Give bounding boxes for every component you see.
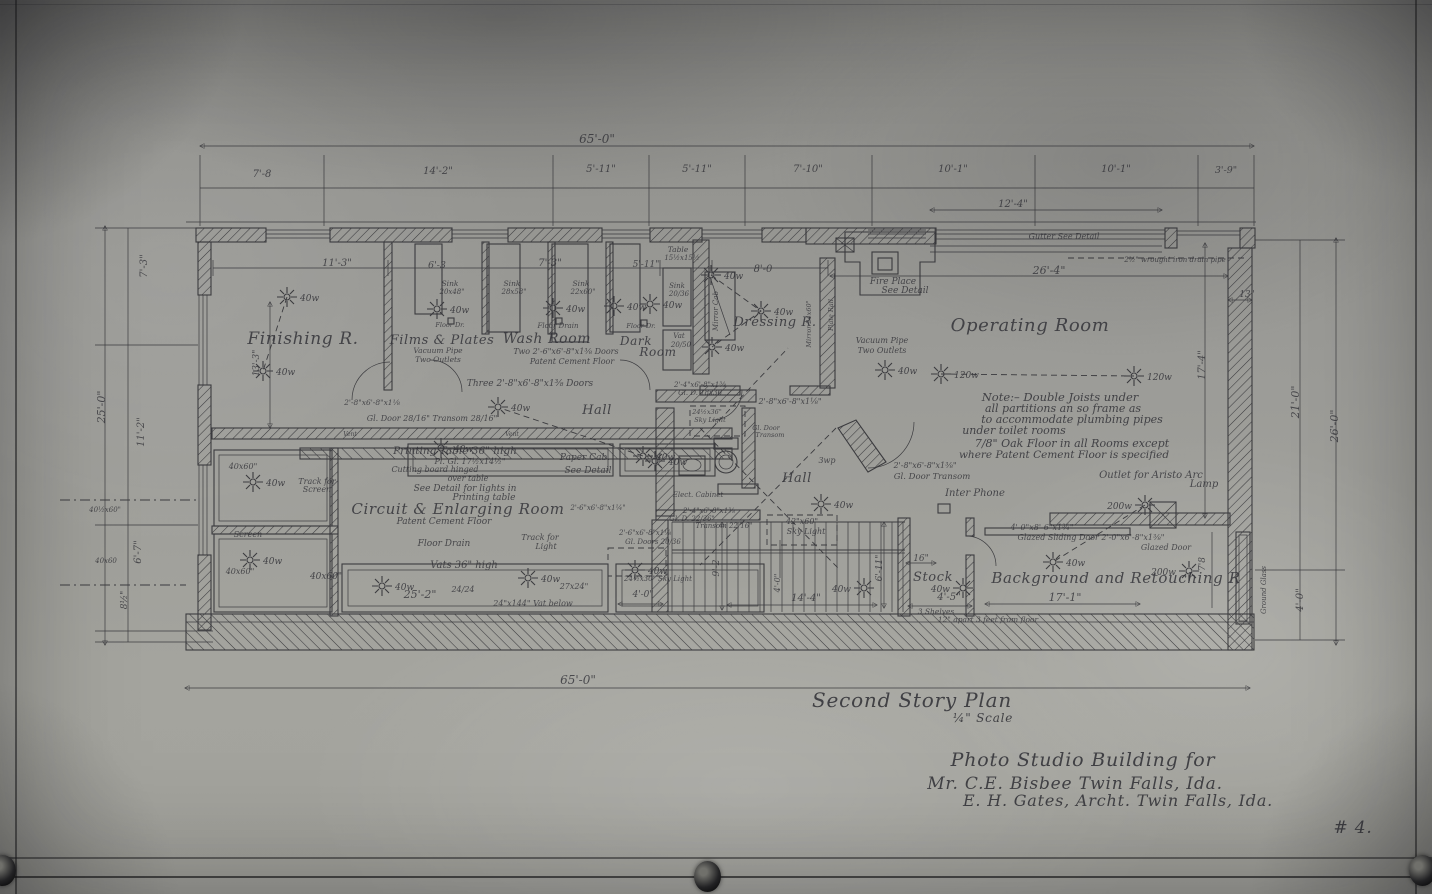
- annotation-label: Vats 36" high: [430, 560, 498, 571]
- light-wattage-label: 40w: [831, 585, 851, 595]
- annotation-label: over table: [448, 474, 489, 483]
- dimension-label: 10'-1": [938, 164, 968, 175]
- annotation-label: Vat: [673, 332, 685, 340]
- light-fixture: 40w: [243, 472, 285, 492]
- dimension-label: 5'-11": [682, 164, 712, 175]
- dimension-label: 11'-3": [322, 258, 352, 269]
- plan-scale: ¼" Scale: [953, 711, 1013, 725]
- annotation-label: 28x58": [501, 288, 527, 296]
- light-wattage-label: 120w: [1147, 373, 1172, 383]
- light-wattage-label: 40w: [299, 294, 319, 304]
- annotation-label: Sky Light: [694, 416, 726, 424]
- dimension-label: 7'-8: [253, 169, 272, 180]
- dimension-label: 26'-4": [1032, 264, 1066, 277]
- light-burst-icon: [518, 568, 538, 588]
- annotation-label: Gl. D. 18x36: [678, 389, 722, 397]
- annotation-label: Vacuum Pipe: [413, 346, 463, 355]
- annotation-label: Patent Cement Floor: [529, 357, 615, 366]
- photo-frame-line-top: [0, 4, 1432, 5]
- interphone-box: [938, 504, 950, 513]
- dimension-label: 6'-3: [428, 260, 446, 271]
- annotation-label: 40½x60": [88, 506, 121, 514]
- annotation-label: Gl. Door Transom: [894, 472, 971, 482]
- annotation-label: 2'-8"x6'-8"x1⅛": [757, 397, 821, 406]
- light-burst-icon: [811, 494, 831, 514]
- annotation-label: 40x60": [228, 462, 258, 471]
- light-wattage-label: 40w: [262, 557, 282, 567]
- annotation-label: 2'-8"x6'-8"x1⅛: [343, 398, 400, 407]
- annotation-label: 2'-4"x6'-8"x1⅜: [682, 507, 735, 515]
- annotation-label: 40x60": [225, 567, 255, 576]
- annotation-label: Glazed Door: [1141, 543, 1192, 552]
- dimension-label: 8'-0: [754, 264, 773, 275]
- note-line: under toilet rooms: [962, 424, 1066, 437]
- annotation-label: Two Outlets: [858, 346, 907, 355]
- annotation-label: 24/24: [450, 585, 474, 594]
- annotation-label: Patent Cement Floor: [396, 517, 493, 527]
- sheet-number: # 4.: [1333, 818, 1372, 838]
- dimension-label: 17'-4": [1197, 350, 1208, 380]
- note-line: where Patent Cement Floor is specified: [959, 449, 1169, 461]
- annotation-label: 2½" wrought iron drain pipe: [1123, 256, 1226, 264]
- light-fixture: 40w: [518, 568, 560, 588]
- annotation-label: Plate Rail: [827, 299, 835, 332]
- dimension-label: 10'-1": [1101, 164, 1131, 175]
- annotation-label: 27x24": [559, 582, 589, 591]
- annotation-label: 2'-6"x6'-8"x1¼": [569, 504, 625, 512]
- dimension-label: 8½": [119, 591, 130, 610]
- dimension-label: 6'-11": [875, 555, 885, 582]
- fastener-grommet-right: [1409, 855, 1432, 886]
- light-wattage-label: 40w: [275, 368, 295, 378]
- light-wattage-label: 40w: [723, 272, 743, 282]
- gutter-lines: [930, 246, 1162, 252]
- floorplan-svg: 40w40w40w40w40w40w40w40w40w40w40w40w120w…: [0, 0, 1432, 894]
- annotation-label: 24"x144" Vat below: [492, 599, 573, 608]
- light-burst-icon: [640, 294, 660, 314]
- architect-line: E. H. Gates, Archt. Twin Falls, Ida.: [962, 791, 1273, 810]
- light-wattage-label: 40w: [833, 501, 853, 511]
- dimension-label: 26'-0": [1328, 410, 1341, 444]
- light-wattage-label: 40w: [1065, 559, 1085, 569]
- annotation-label: Gl. Door 28/16" Transom 28/16": [367, 414, 498, 423]
- sink-films: [415, 244, 442, 314]
- dimension-label: 65'-0": [579, 132, 615, 146]
- annotation-label: Glazed Sliding Door 2'-0"x6'-8"x1⅜": [1018, 533, 1165, 542]
- annotation-label: 20x48": [439, 288, 465, 296]
- annotation-label: Screen: [234, 530, 262, 539]
- dimension-label: 3'-9": [1215, 165, 1237, 176]
- annotation-label: Sink: [669, 282, 685, 290]
- light-wattage-label: 40w: [565, 305, 585, 315]
- annotation-label: 24½x30" Sky Light: [623, 575, 692, 583]
- light-wattage-label: 40w: [510, 404, 530, 414]
- light-burst-icon: [875, 360, 895, 380]
- light-burst-icon: [854, 578, 874, 598]
- dimension-label: 11'-2": [136, 417, 147, 447]
- dimension-label: 4'-0": [773, 574, 782, 594]
- dimension-label: 4'-0": [1295, 588, 1306, 612]
- annotation-label: Lamp: [1189, 479, 1219, 490]
- annotation-label: 2'-8"x6'-8"x1⅜": [892, 461, 956, 470]
- dimension-label: 5'-11": [586, 164, 616, 175]
- dimension-label: 25'-0": [95, 391, 108, 425]
- annotation-label: 24½x36": [691, 408, 722, 416]
- annotation-label: 4'-0"x8'-6"x1¾": [1009, 523, 1073, 532]
- annotation-label: Floor Drain: [537, 322, 579, 330]
- project-title: Photo Studio Building for: [950, 749, 1217, 771]
- annotation-label: 22x60": [570, 288, 596, 296]
- annotation-label: Inter Phone: [944, 488, 1005, 499]
- annotation-label: See Detail: [882, 286, 929, 296]
- annotation-label: Mirror 24x60": [805, 300, 813, 348]
- dimension-label: 17'-1": [1049, 591, 1082, 604]
- annotation-label: Table: [668, 245, 689, 254]
- dimension-label: 13'-3": [252, 350, 262, 377]
- dimension-label: 21'-0": [1289, 386, 1302, 420]
- annotation-label: Printing Table 36" high: [392, 445, 517, 457]
- annotation-label: 20/36: [668, 290, 690, 298]
- annotation-label: Elect. Cabinet: [672, 491, 724, 499]
- plan-title: Second Story Plan: [812, 688, 1012, 712]
- light-burst-icon: [427, 299, 447, 319]
- annotation-label: See Detail: [565, 466, 612, 476]
- annotation-label: Sink: [573, 279, 590, 288]
- room-label-operating: Operating Room: [951, 315, 1110, 336]
- fastener-grommet-center: [694, 861, 721, 892]
- annotation-label: Outlet for Aristo Arc: [1099, 470, 1203, 481]
- light-wattage-label: 40w: [667, 458, 687, 468]
- light-fixture: 40w: [811, 494, 853, 514]
- dimension-label: 14'-4": [791, 593, 821, 604]
- counter: [610, 244, 640, 332]
- light-fixture: 200w: [1106, 495, 1155, 515]
- dimension-label: 7'8: [1198, 557, 1208, 571]
- light-wattage-label: 200w: [1106, 502, 1132, 512]
- annotation-label: Sky Light: [787, 527, 827, 536]
- annotation-label: Paper Cab.: [559, 453, 610, 463]
- annotation-label: Three 2'-8"x6'-8"x1⅜ Doors: [467, 379, 594, 389]
- annotation-label: 2'-6"x6'-8"x1⅛: [618, 529, 671, 537]
- light-fixture: 120w: [931, 364, 979, 384]
- room-label-dressing: Dressing R.: [732, 315, 816, 330]
- room-label-stock: Stock: [913, 570, 953, 585]
- annotation-label: Mirror Cab: [712, 291, 720, 332]
- dimension-label: 4'-5": [936, 592, 960, 603]
- annotation-label: Vacuum Pipe: [856, 336, 909, 345]
- light-fixture: 40w: [875, 360, 917, 380]
- light-wattage-label: 40w: [540, 575, 560, 585]
- annotation-label: Gutter See Detail: [1029, 232, 1100, 241]
- photo-frame-line-bottom-1: [0, 857, 1432, 859]
- annotation-label: 42"x60": [785, 517, 818, 526]
- dimension-label: 25'-2": [403, 588, 437, 601]
- annotation-label: Sink: [442, 279, 459, 288]
- annotation-label: 20/50: [670, 341, 692, 349]
- room-label-hall-1: Hall: [581, 403, 612, 418]
- dimension-label: 12'-4": [998, 199, 1028, 210]
- dimension-label: 5'-11": [633, 260, 660, 270]
- annotation-label: 40x60": [309, 572, 342, 582]
- dimension-label: 16": [913, 554, 929, 564]
- dimension-label: 14'-2": [423, 166, 453, 177]
- annotation-label: Track for: [521, 533, 560, 542]
- annotation-label: Floor Dr.: [434, 321, 464, 329]
- dimension-label: 4'-0": [631, 590, 653, 600]
- annotation-label: Screen: [303, 485, 331, 494]
- annotation-label: Vent: [343, 431, 357, 438]
- light-wattage-label: 40w: [897, 367, 917, 377]
- light-wattage-label: 120w: [954, 371, 979, 381]
- annotation-label: Light: [534, 542, 557, 551]
- photo-frame-line-left: [15, 0, 17, 894]
- light-wattage-label: 40w: [449, 306, 469, 316]
- room-label-hall-2: Hall: [781, 471, 812, 486]
- annotation-label: Two Outlets: [415, 355, 461, 364]
- light-fixture: 40w: [277, 287, 319, 307]
- light-burst-icon: [372, 576, 392, 596]
- annotation-label: Two 2'-6"x6'-8"x1⅜ Doors: [513, 347, 618, 356]
- light-wattage-label: 40w: [724, 344, 744, 354]
- annotation-label: 15½x15½: [664, 254, 700, 262]
- blueprint-photograph: { "drawing": { "plan_title": "Second Sto…: [0, 0, 1432, 894]
- light-burst-icon: [243, 472, 263, 492]
- annotation-label: Floor Dr.: [625, 322, 655, 330]
- light-burst-icon: [604, 296, 624, 316]
- annotation-label: Transom: [756, 431, 785, 439]
- annotation-label: Sink: [504, 279, 521, 288]
- dimension-label: 7'-3": [538, 258, 561, 269]
- annotation-label: Printing table: [452, 493, 516, 503]
- light-wattage-label: 40w: [265, 479, 285, 489]
- light-fixture: 40w: [427, 299, 469, 319]
- dimension-label: 65'-0": [560, 673, 596, 687]
- dimension-label: 9'-2: [712, 559, 722, 576]
- annotation-label: 3wp: [818, 456, 835, 465]
- light-burst-icon: [645, 451, 665, 471]
- dimension-label: 7'-3": [139, 254, 150, 277]
- dimension-label: 6'-7": [133, 540, 144, 563]
- annotation-label: Ground Glass: [1260, 566, 1268, 614]
- annotation-label: Vent: [505, 431, 519, 438]
- light-wattage-label: 40w: [662, 301, 682, 311]
- dimension-label: 7'-10": [793, 164, 823, 175]
- annotation-label: Gl. Doors 20/36: [625, 538, 681, 546]
- room-label-wash-room: Wash Room: [503, 331, 591, 347]
- annotation-label: 12" apart 3 feet from floor: [938, 615, 1039, 624]
- annotation-label: Floor Drain: [417, 539, 471, 549]
- annotation-label: Cutting board hinged: [391, 465, 478, 474]
- photo-frame-line-right: [1415, 0, 1417, 894]
- annotation-label: 40x60: [94, 557, 117, 565]
- room-label-finishing: Finishing R.: [246, 329, 358, 349]
- annotation-label: 2'-4"x6'-8"x1⅜: [673, 381, 726, 389]
- light-fixture: 120w: [1124, 366, 1172, 386]
- dimension-label: 13": [1239, 290, 1255, 300]
- annotation-label: Transom 22/16": [696, 522, 753, 530]
